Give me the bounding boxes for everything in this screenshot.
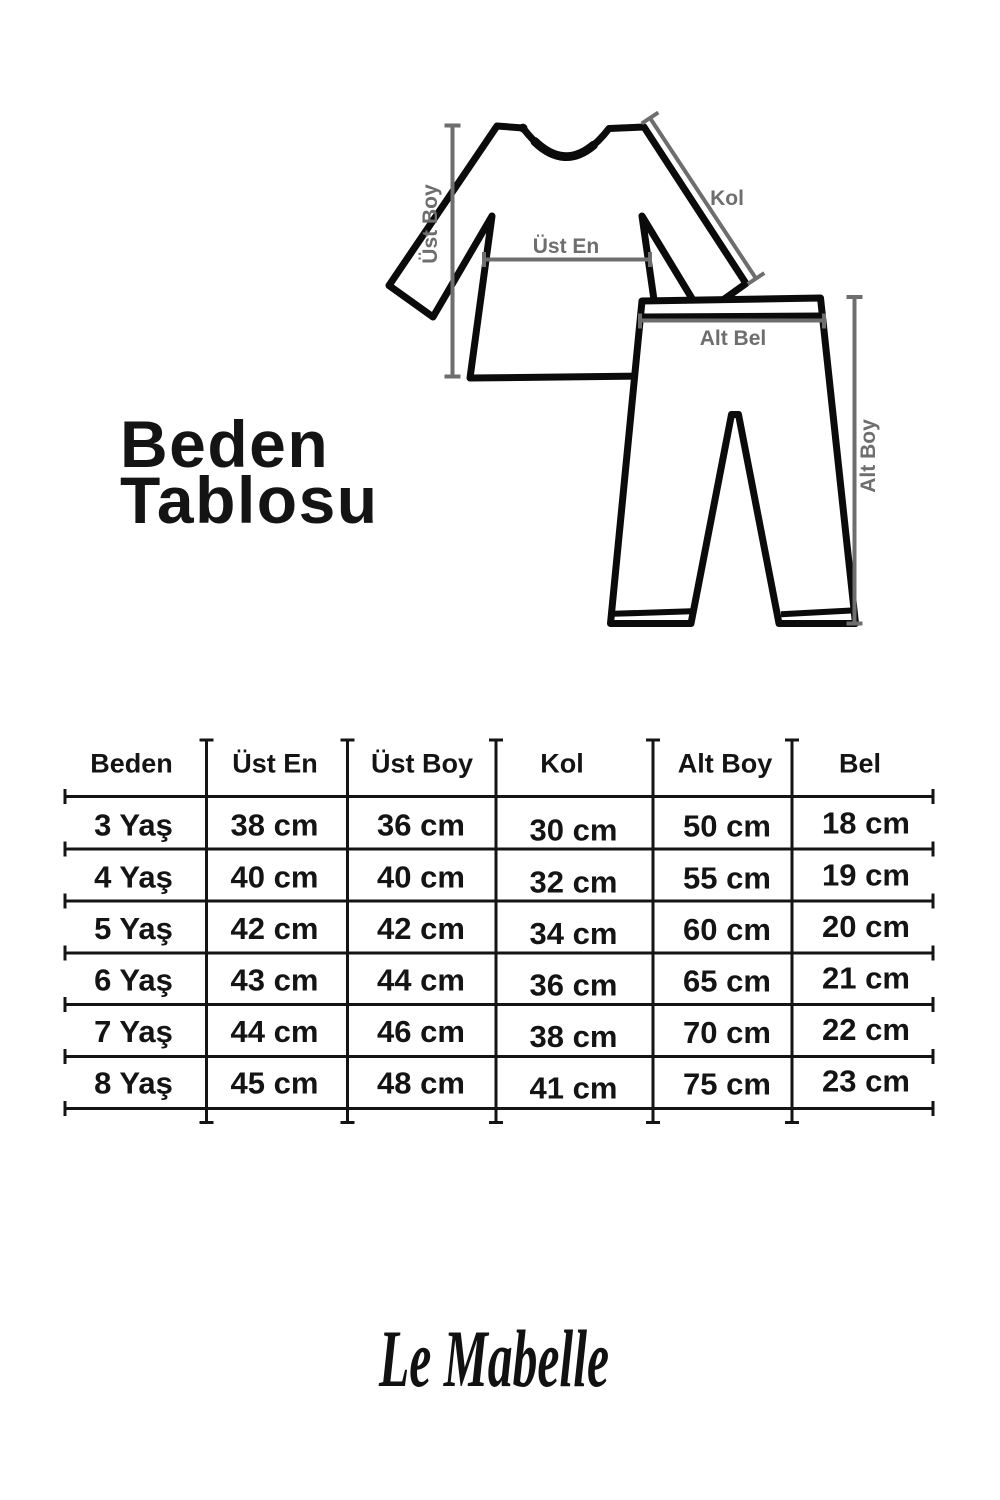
- svg-text:36 cm: 36 cm: [377, 808, 465, 843]
- svg-text:50 cm: 50 cm: [683, 809, 771, 844]
- svg-text:18 cm: 18 cm: [822, 806, 910, 841]
- svg-text:Kol: Kol: [540, 749, 584, 779]
- svg-text:44 cm: 44 cm: [231, 1014, 319, 1049]
- svg-text:55 cm: 55 cm: [683, 861, 771, 896]
- svg-text:42 cm: 42 cm: [231, 911, 319, 946]
- svg-text:41 cm: 41 cm: [530, 1071, 618, 1106]
- svg-text:Üst En: Üst En: [232, 749, 318, 779]
- svg-text:23 cm: 23 cm: [822, 1064, 910, 1099]
- svg-text:38 cm: 38 cm: [530, 1019, 618, 1054]
- svg-text:60 cm: 60 cm: [683, 912, 771, 947]
- svg-text:Üst Boy: Üst Boy: [419, 184, 442, 264]
- svg-text:32 cm: 32 cm: [530, 865, 618, 900]
- svg-text:3 Yaş: 3 Yaş: [94, 808, 173, 843]
- svg-text:6 Yaş: 6 Yaş: [94, 963, 173, 998]
- svg-text:42 cm: 42 cm: [377, 911, 465, 946]
- svg-text:45 cm: 45 cm: [231, 1066, 319, 1101]
- svg-text:Bel: Bel: [839, 749, 881, 779]
- svg-text:Tablosu: Tablosu: [120, 463, 379, 537]
- svg-text:21 cm: 21 cm: [822, 961, 910, 996]
- svg-text:22 cm: 22 cm: [822, 1012, 910, 1047]
- svg-text:40 cm: 40 cm: [231, 860, 319, 895]
- svg-text:34 cm: 34 cm: [530, 916, 618, 951]
- svg-text:7 Yaş: 7 Yaş: [94, 1014, 173, 1049]
- svg-text:Kol: Kol: [710, 187, 744, 210]
- svg-text:44 cm: 44 cm: [377, 963, 465, 998]
- svg-text:30 cm: 30 cm: [530, 813, 618, 848]
- svg-text:Alt Bel: Alt Bel: [700, 327, 767, 350]
- svg-text:75 cm: 75 cm: [683, 1067, 771, 1102]
- svg-text:46 cm: 46 cm: [377, 1014, 465, 1049]
- svg-text:4 Yaş: 4 Yaş: [94, 860, 173, 895]
- svg-text:65 cm: 65 cm: [683, 964, 771, 999]
- svg-text:5 Yaş: 5 Yaş: [94, 911, 173, 946]
- svg-text:38 cm: 38 cm: [231, 808, 319, 843]
- svg-text:Alt Boy: Alt Boy: [678, 749, 773, 779]
- svg-text:Üst Boy: Üst Boy: [371, 749, 473, 779]
- svg-text:Beden: Beden: [90, 749, 173, 779]
- svg-text:8 Yaş: 8 Yaş: [94, 1066, 173, 1101]
- svg-text:20 cm: 20 cm: [822, 909, 910, 944]
- svg-text:43 cm: 43 cm: [231, 963, 319, 998]
- svg-text:19 cm: 19 cm: [822, 858, 910, 893]
- svg-text:36 cm: 36 cm: [530, 968, 618, 1003]
- svg-text:Le Mabelle: Le Mabelle: [378, 1313, 609, 1404]
- svg-text:40 cm: 40 cm: [377, 860, 465, 895]
- svg-text:Üst En: Üst En: [533, 235, 600, 258]
- svg-text:Alt Boy: Alt Boy: [857, 419, 880, 493]
- svg-text:48 cm: 48 cm: [377, 1066, 465, 1101]
- svg-text:70 cm: 70 cm: [683, 1015, 771, 1050]
